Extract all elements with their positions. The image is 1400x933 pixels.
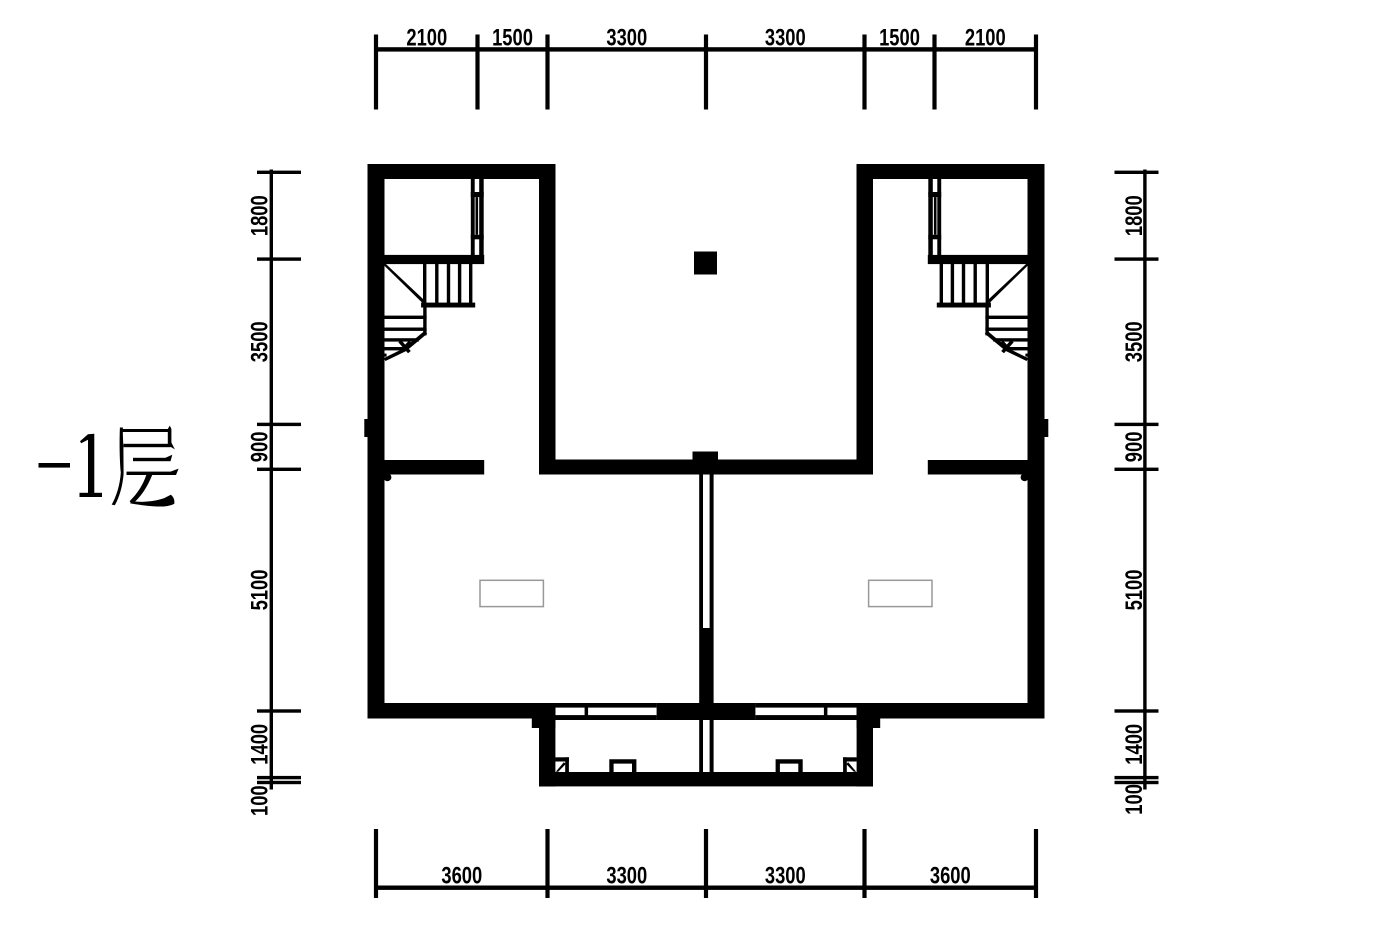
- svg-text:2100: 2100: [965, 23, 1006, 51]
- svg-text:1500: 1500: [492, 23, 533, 51]
- svg-text:3300: 3300: [606, 23, 647, 51]
- svg-text:100: 100: [245, 785, 273, 816]
- svg-text:900: 900: [245, 432, 273, 463]
- svg-text:1400: 1400: [1119, 724, 1147, 765]
- svg-text:3600: 3600: [930, 861, 971, 889]
- svg-text:1500: 1500: [879, 23, 920, 51]
- svg-text:3600: 3600: [441, 861, 482, 889]
- svg-text:3300: 3300: [765, 861, 806, 889]
- svg-text:5100: 5100: [245, 570, 273, 611]
- svg-text:5100: 5100: [1119, 570, 1147, 611]
- svg-text:3300: 3300: [606, 861, 647, 889]
- svg-text:100: 100: [1119, 784, 1147, 815]
- svg-text:1400: 1400: [245, 724, 273, 765]
- svg-text:1800: 1800: [245, 195, 273, 236]
- svg-text:3300: 3300: [765, 23, 806, 51]
- svg-text:1800: 1800: [1119, 195, 1147, 236]
- svg-text:900: 900: [1119, 432, 1147, 463]
- svg-text:3500: 3500: [1119, 321, 1147, 362]
- svg-text:2100: 2100: [406, 23, 447, 51]
- svg-text:3500: 3500: [245, 321, 273, 362]
